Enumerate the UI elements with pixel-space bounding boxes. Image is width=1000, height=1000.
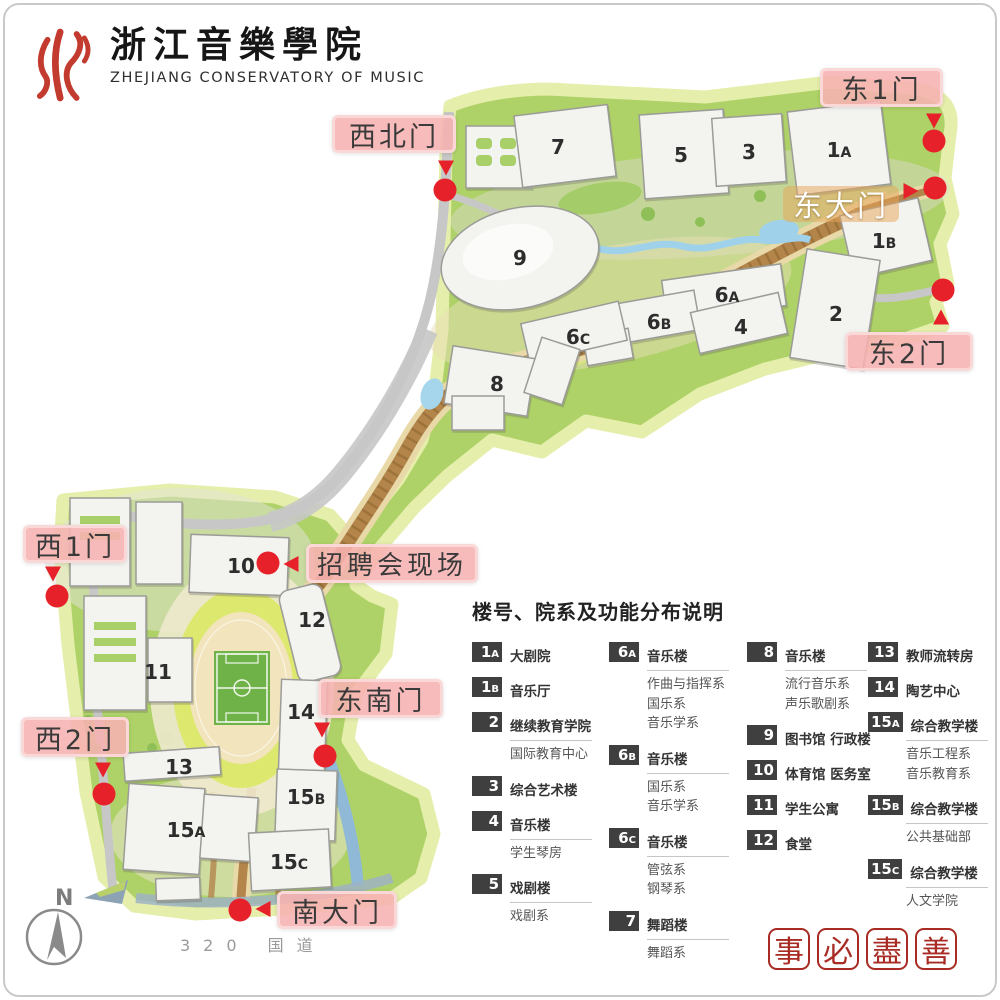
location-marker-west-1 — [46, 585, 69, 608]
legend-item-10: 10体育馆 医务室 — [747, 760, 883, 783]
building-number-6A: 6A — [715, 283, 740, 307]
building-number-10: 10 — [227, 554, 255, 578]
legend-badge-10: 10 — [747, 760, 777, 780]
building-number-2: 2 — [829, 302, 843, 326]
legend-item-departments: 国际教育中心 — [510, 740, 592, 764]
legend-item-15C: 15C综合教学楼人文学院 — [868, 859, 1000, 911]
legend-department: 舞蹈系 — [647, 945, 729, 963]
legend-item-title: 音乐楼 — [647, 642, 688, 665]
marker-arrow-southeast — [314, 723, 330, 738]
seal-char-4: 善 — [915, 928, 957, 970]
legend-item-title: 音乐楼 — [785, 642, 826, 665]
legend-item-title: 体育馆 医务室 — [785, 760, 871, 783]
legend-item-15B: 15B综合教学楼公共基础部 — [868, 795, 1000, 847]
building-number-15A: 15A — [167, 818, 206, 842]
building-number-14: 14 — [287, 700, 315, 724]
legend-item-title: 综合教学楼 — [911, 712, 979, 735]
gate-label-east-1: 东1门 — [820, 68, 943, 107]
legend-item-9: 9图书馆 行政楼 — [747, 725, 883, 748]
legend-badge-12: 12 — [747, 830, 777, 850]
gate-label-east-main: 东大门 — [783, 186, 899, 222]
building-number-1B: 1B — [872, 229, 897, 253]
legend-item-7: 7舞蹈楼舞蹈系 — [609, 911, 745, 963]
legend-item-11: 11学生公寓 — [747, 795, 883, 818]
legend-badge-6C: 6C — [609, 828, 639, 848]
seal-char-2: 必 — [817, 928, 859, 970]
marker-arrow-west-1 — [45, 567, 61, 582]
legend-badge-15B: 15B — [868, 795, 903, 815]
national-road-label: 320 国道 — [180, 932, 326, 956]
legend-department: 钢琴系 — [647, 881, 729, 899]
location-marker-east-1 — [923, 130, 946, 153]
marker-arrow-job-fair — [284, 556, 299, 572]
gate-label-southeast: 东南门 — [318, 679, 443, 718]
legend-badge-7: 7 — [609, 911, 639, 931]
legend-department: 流行音乐系 — [785, 676, 867, 694]
building-number-6B: 6B — [647, 310, 672, 334]
legend-department: 音乐工程系 — [906, 746, 988, 764]
location-marker-job-fair — [257, 552, 280, 575]
seal-icon: 事必盡善 — [768, 928, 957, 970]
building-number-15B: 15B — [287, 785, 326, 809]
legend-department: 学生琴房 — [510, 845, 592, 863]
legend-item-title: 戏剧楼 — [510, 874, 551, 897]
legend-badge-2: 2 — [472, 712, 502, 732]
legend-column-4: 13教师流转房14陶艺中心15A综合教学楼音乐工程系音乐教育系15B综合教学楼公… — [868, 642, 1000, 922]
gate-label-west-1: 西1门 — [23, 525, 127, 563]
legend-badge-15A: 15A — [868, 712, 903, 732]
location-marker-south-main — [229, 899, 252, 922]
campus-map-poster: 浙江音樂學院 ZHEJIANG CONSERVATORY OF MUSIC — [0, 0, 1000, 1000]
legend-department: 音乐教育系 — [906, 766, 988, 784]
legend-column-1: 1A大剧院1B音乐厅2继续教育学院国际教育中心3综合艺术楼4音乐楼学生琴房5戏剧… — [472, 642, 608, 938]
gate-label-south-main: 南大门 — [277, 891, 397, 929]
legend-badge-9: 9 — [747, 725, 777, 745]
legend-item-title: 大剧院 — [510, 642, 551, 665]
legend-item-14: 14陶艺中心 — [868, 677, 1000, 700]
gate-label-east-2: 东2门 — [845, 332, 973, 371]
marker-arrow-south-main — [256, 901, 271, 917]
legend-badge-8: 8 — [747, 642, 777, 662]
legend-badge-15C: 15C — [868, 859, 902, 879]
legend-item-8: 8音乐楼流行音乐系声乐歌剧系 — [747, 642, 883, 713]
compass-north-label: N — [55, 886, 73, 911]
legend-department: 作曲与指挥系 — [647, 676, 729, 694]
legend-department: 国乐系 — [647, 696, 729, 714]
marker-arrow-east-1 — [926, 114, 942, 129]
legend-badge-3: 3 — [472, 776, 502, 796]
legend-item-departments: 国乐系音乐学系 — [647, 773, 729, 816]
legend-item-title: 综合艺术楼 — [510, 776, 578, 799]
building-number-1A: 1A — [827, 138, 852, 162]
legend-badge-6B: 6B — [609, 745, 639, 765]
legend-badge-6A: 6A — [609, 642, 639, 662]
legend-item-3: 3综合艺术楼 — [472, 776, 608, 799]
legend-item-title: 舞蹈楼 — [647, 911, 688, 934]
legend-department: 国际教育中心 — [510, 746, 592, 764]
marker-arrow-west-2 — [95, 763, 111, 778]
building-number-13: 13 — [165, 755, 193, 779]
marker-arrow-east-2 — [933, 310, 949, 325]
legend-badge-5: 5 — [472, 874, 502, 894]
legend-item-departments: 作曲与指挥系国乐系音乐学系 — [647, 670, 729, 733]
legend-item-5: 5戏剧楼戏剧系 — [472, 874, 608, 926]
location-marker-west-2 — [93, 783, 116, 806]
legend-item-1A: 1A大剧院 — [472, 642, 608, 665]
legend-department: 管弦系 — [647, 862, 729, 880]
legend-item-departments: 人文学院 — [906, 887, 988, 911]
marker-arrow-east-main — [904, 183, 919, 199]
building-number-15C: 15C — [270, 850, 308, 874]
legend-department: 音乐学系 — [647, 715, 729, 733]
legend-item-title: 食堂 — [785, 830, 812, 853]
legend-item-title: 图书馆 行政楼 — [785, 725, 871, 748]
compass: N — [20, 884, 110, 984]
legend-department: 公共基础部 — [906, 829, 988, 847]
marker-arrow-northwest — [438, 161, 454, 176]
legend-item-12: 12食堂 — [747, 830, 883, 853]
legend-badge-1B: 1B — [472, 677, 502, 697]
legend-badge-14: 14 — [868, 677, 898, 697]
location-marker-northwest — [434, 179, 457, 202]
building-number-6C: 6C — [566, 325, 590, 349]
legend-item-departments: 管弦系钢琴系 — [647, 856, 729, 899]
legend-item-6A: 6A音乐楼作曲与指挥系国乐系音乐学系 — [609, 642, 745, 733]
building-number-3: 3 — [742, 140, 756, 164]
building-number-7: 7 — [551, 135, 565, 159]
legend-item-departments: 流行音乐系声乐歌剧系 — [785, 670, 867, 713]
legend-item-title: 教师流转房 — [906, 642, 974, 665]
legend-item-title: 陶艺中心 — [906, 677, 960, 700]
legend-item-6B: 6B音乐楼国乐系音乐学系 — [609, 745, 745, 816]
legend-item-title: 音乐楼 — [647, 828, 688, 851]
legend-department: 戏剧系 — [510, 908, 592, 926]
legend-item-departments: 戏剧系 — [510, 902, 592, 926]
gate-label-northwest: 西北门 — [332, 115, 456, 153]
legend-item-departments: 音乐工程系音乐教育系 — [906, 740, 988, 783]
legend-item-4: 4音乐楼学生琴房 — [472, 811, 608, 863]
legend-item-2: 2继续教育学院国际教育中心 — [472, 712, 608, 764]
legend-item-title: 综合教学楼 — [911, 795, 979, 818]
building-number-8: 8 — [490, 372, 504, 396]
legend-badge-13: 13 — [868, 642, 898, 662]
legend-item-departments: 舞蹈系 — [647, 939, 729, 963]
legend: 楼号、院系及功能分布说明 1A大剧院1B音乐厅2继续教育学院国际教育中心3综合艺… — [472, 596, 996, 641]
location-marker-east-2 — [932, 279, 955, 302]
legend-department: 声乐歌剧系 — [785, 696, 867, 714]
location-marker-southeast — [314, 745, 337, 768]
building-number-12: 12 — [298, 608, 326, 632]
legend-badge-4: 4 — [472, 811, 502, 831]
legend-column-2: 6A音乐楼作曲与指挥系国乐系音乐学系6B音乐楼国乐系音乐学系6C音乐楼管弦系钢琴… — [609, 642, 745, 974]
legend-item-title: 音乐楼 — [510, 811, 551, 834]
legend-item-6C: 6C音乐楼管弦系钢琴系 — [609, 828, 745, 899]
seal-char-3: 盡 — [866, 928, 908, 970]
legend-item-title: 音乐厅 — [510, 677, 551, 700]
legend-item-title: 继续教育学院 — [510, 712, 591, 735]
legend-department: 国乐系 — [647, 779, 729, 797]
legend-department: 音乐学系 — [647, 798, 729, 816]
building-number-4: 4 — [734, 315, 748, 339]
building-number-11: 11 — [144, 660, 172, 684]
legend-badge-1A: 1A — [472, 642, 502, 662]
legend-item-title: 学生公寓 — [785, 795, 839, 818]
building-number-5: 5 — [674, 143, 688, 167]
seal-char-1: 事 — [768, 928, 810, 970]
legend-title: 楼号、院系及功能分布说明 — [472, 596, 996, 625]
legend-column-3: 8音乐楼流行音乐系声乐歌剧系9图书馆 行政楼10体育馆 医务室11学生公寓12食… — [747, 642, 883, 865]
location-marker-east-main — [924, 177, 947, 200]
legend-department: 人文学院 — [906, 893, 988, 911]
building-number-9: 9 — [513, 246, 527, 270]
gate-label-job-fair: 招聘会现场 — [306, 544, 478, 583]
gate-label-west-2: 西2门 — [21, 717, 129, 757]
legend-item-13: 13教师流转房 — [868, 642, 1000, 665]
legend-item-departments: 公共基础部 — [906, 823, 988, 847]
legend-item-1B: 1B音乐厅 — [472, 677, 608, 700]
legend-item-title: 音乐楼 — [647, 745, 688, 768]
legend-item-15A: 15A综合教学楼音乐工程系音乐教育系 — [868, 712, 1000, 783]
legend-item-departments: 学生琴房 — [510, 839, 592, 863]
legend-badge-11: 11 — [747, 795, 777, 815]
legend-item-title: 综合教学楼 — [910, 859, 978, 882]
